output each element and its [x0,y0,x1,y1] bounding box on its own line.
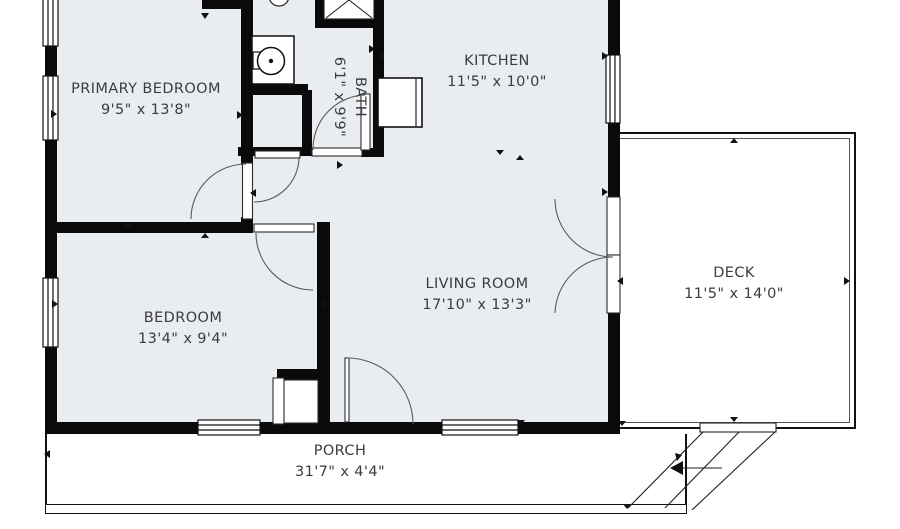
label-living-room: LIVING ROOM 17'10" x 13'3" [422,274,531,316]
room-dims: 13'4" x 9'4" [138,329,228,350]
tick [730,417,738,422]
window-left-1 [43,0,58,46]
bedroom-door-arc [256,233,313,290]
tick [201,13,209,19]
tick [844,277,850,285]
tick [618,421,626,426]
shower-icon [324,0,374,19]
tick [337,161,343,169]
label-porch: PORCH 31'7" x 4'4" [295,441,385,483]
room-name: BATH [349,57,370,137]
bedroom-closet-interior [284,380,318,423]
room-dims: 11'5" x 14'0" [684,284,784,305]
label-primary-bedroom: PRIMARY BEDROOM 9'5" x 13'8" [71,79,221,121]
bedroom-closet-door-leaf [273,378,284,424]
primary-bedroom-door-leaf [243,163,253,219]
room-dims: 9'5" x 13'8" [71,100,221,121]
hall-closet-door-arc [254,157,299,202]
bedroom-door-leaf [254,224,314,232]
deck-door-arc-upper [555,199,613,257]
room-name: KITCHEN [447,51,547,72]
tick [496,150,504,155]
room-dims: 6'1" x 9'9" [328,57,349,137]
window-left-2 [43,76,58,140]
room-name: DECK [684,263,784,284]
tick [602,188,608,196]
room-dims: 31'7" x 4'4" [295,462,385,483]
tick [44,450,50,458]
toilet-icon [252,36,294,84]
tick [124,224,132,229]
room-name: BEDROOM [138,308,228,329]
window-left-3 [43,278,58,347]
door-swing-arcs [191,95,613,424]
tick [516,155,524,160]
room-name: PRIMARY BEDROOM [71,79,221,100]
label-deck: DECK 11'5" x 14'0" [684,263,784,305]
tick [237,111,243,119]
door-leaves [243,94,621,424]
room-name: PORCH [295,441,385,462]
tick [320,300,326,308]
window-living-bottom [442,420,518,435]
label-bedroom: BEDROOM 13'4" x 9'4" [138,308,228,350]
refrigerator-icon [378,78,422,127]
room-dims: 11'5" x 10'0" [447,72,547,93]
tick [369,45,375,53]
floor-plan-canvas: PRIMARY BEDROOM 9'5" x 13'8" BATH 6'1" x… [0,0,900,529]
deck-stairs-arrow [628,423,776,510]
label-bath: BATH 6'1" x 9'9" [328,57,370,137]
tick [730,138,738,143]
window-kitchen-right [606,55,620,123]
sink-icon [269,0,289,6]
primary-bedroom-door-arc [191,164,246,219]
tick [201,233,209,238]
deck-door-leaf-lower [607,255,620,313]
room-dims: 17'10" x 13'3" [422,295,531,316]
hall-closet-door-leaf [255,151,300,158]
front-door-arc [347,358,413,424]
tick [378,52,384,60]
bath-door-opening [312,148,362,156]
label-kitchen: KITCHEN 11'5" x 10'0" [447,51,547,93]
front-door-leaf [345,358,349,422]
room-name: LIVING ROOM [422,274,531,295]
deck-door-arc-lower [555,257,613,313]
window-bedroom-bottom [198,420,260,435]
deck-door-leaf-upper [607,197,620,255]
